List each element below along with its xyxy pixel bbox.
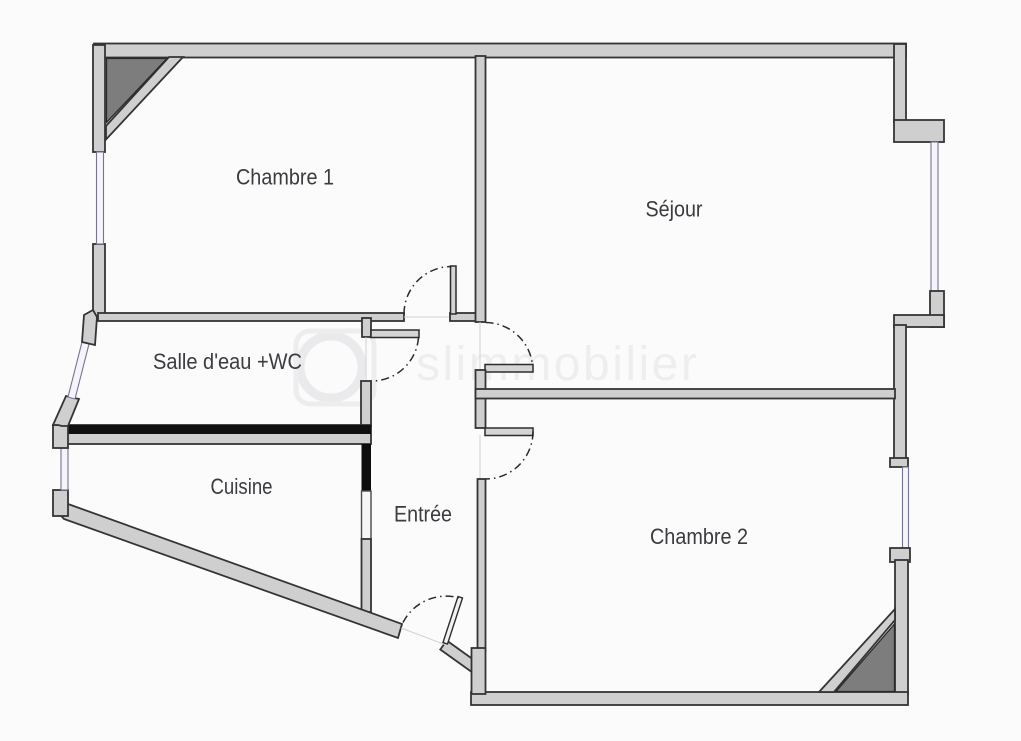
svg-text:Chambre 2: Chambre 2 — [650, 524, 748, 549]
svg-text:slimmobilier: slimmobilier — [416, 338, 699, 391]
svg-text:Salle d'eau +WC: Salle d'eau +WC — [153, 349, 302, 374]
svg-text:Séjour: Séjour — [646, 197, 703, 222]
svg-text:Cuisine: Cuisine — [211, 474, 273, 499]
svg-text:Entrée: Entrée — [394, 502, 452, 527]
svg-text:Chambre 1: Chambre 1 — [236, 165, 334, 190]
